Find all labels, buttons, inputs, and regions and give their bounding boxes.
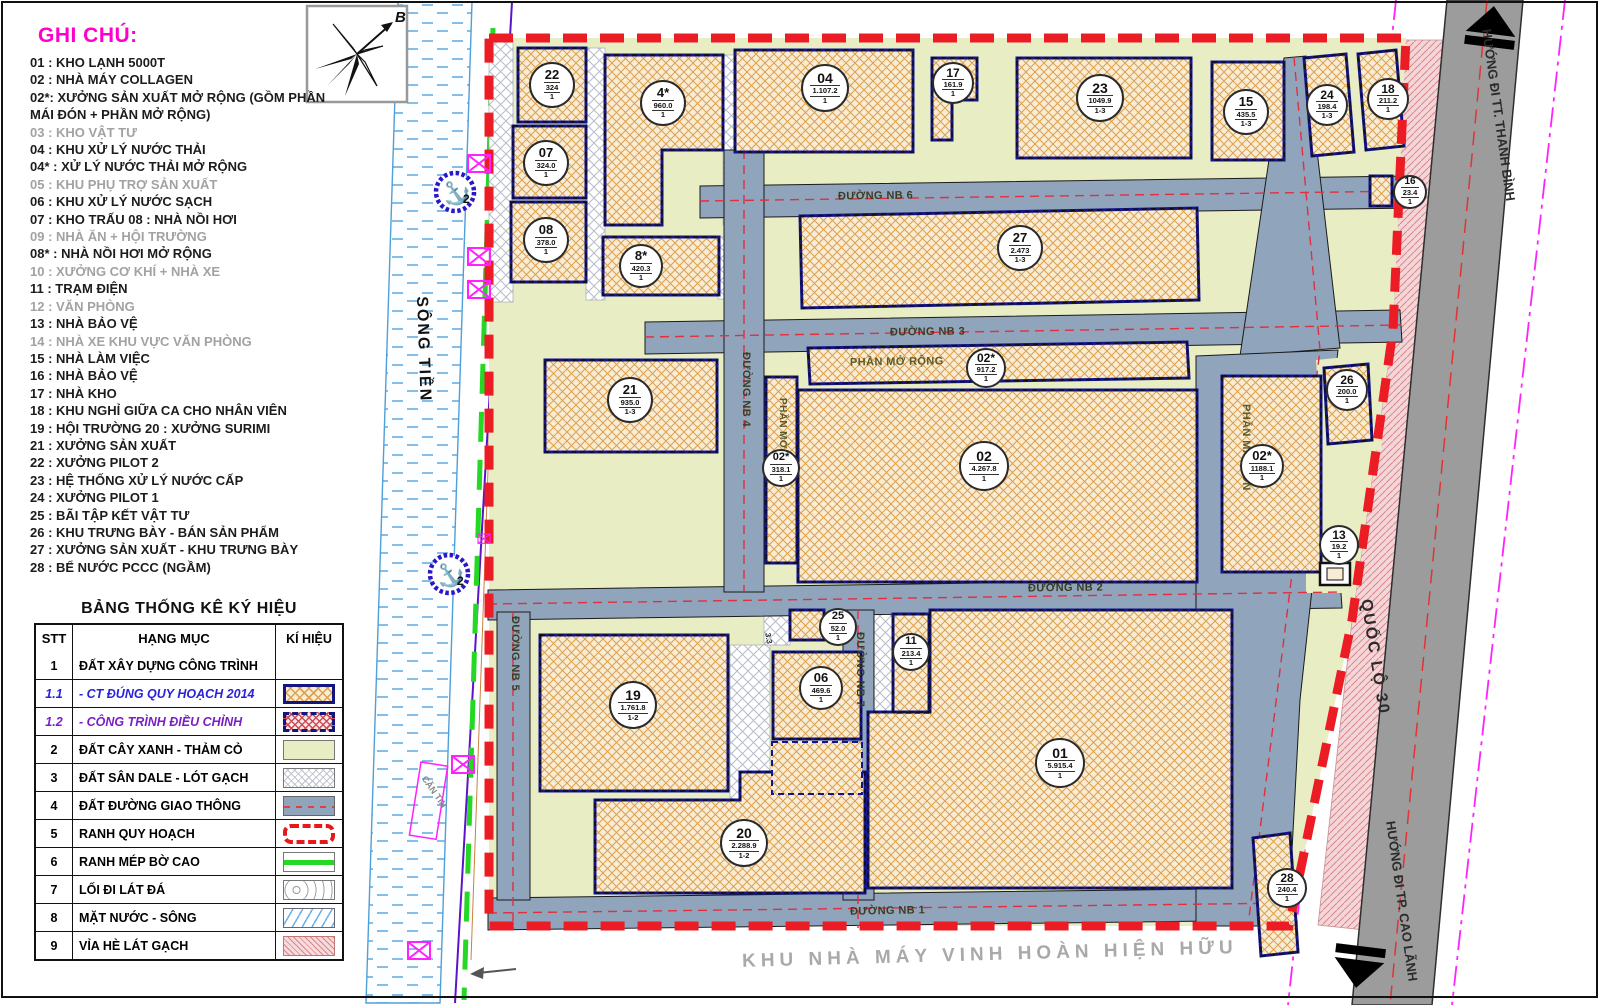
building-area: 1.761.8	[618, 702, 647, 713]
row-label: ĐẤT ĐƯỜNG GIAO THÔNG	[73, 792, 276, 819]
building-number: 15	[1239, 95, 1253, 108]
building-floors: 1	[909, 659, 913, 668]
row-label: LỐI ĐI LÁT ĐÁ	[73, 876, 276, 903]
legend-item: 01 : KHO LẠNH 5000T	[30, 54, 326, 71]
row-symbol-cell	[276, 904, 342, 931]
building-label-07: 07324.01	[523, 140, 569, 186]
row-label: VỈA HÈ LÁT GẠCH	[73, 932, 276, 959]
building-label-16: 1623.41	[1393, 175, 1427, 209]
legend-item: 02 : NHÀ MÁY COLLAGEN	[30, 71, 326, 88]
building-label-28: 28240.41	[1267, 868, 1307, 908]
building-label-01: 015.915.41	[1035, 738, 1085, 788]
symbol-table-row: 9VỈA HÈ LÁT GẠCH	[36, 931, 342, 959]
symbol-swatch-road	[283, 796, 335, 816]
road-label-nb1: ĐƯỜNG NB 1	[850, 904, 925, 918]
legend-title: GHI CHÚ:	[38, 24, 326, 48]
symbol-table-row: 8MẶT NƯỚC - SÔNG	[36, 903, 342, 931]
header-kihieu: KÍ HIỆU	[276, 625, 342, 652]
building-label-4s: 4*960.01	[640, 80, 686, 126]
building-floors: 1	[550, 93, 554, 102]
row-stt: 3	[36, 764, 73, 791]
symbol-swatch-stone	[283, 880, 335, 900]
symbol-table-grid: STT HẠNG MỤC KÍ HIỆU 1ĐẤT XÂY DỰNG CÔNG …	[34, 623, 344, 961]
road-label-nb2: ĐƯỜNG NB 2	[1028, 581, 1103, 594]
building-label-26: 26200.01	[1326, 369, 1368, 411]
building-floors: 1	[951, 90, 955, 99]
row-symbol-cell	[276, 708, 342, 735]
building-label-21: 21935.01-3	[607, 377, 653, 423]
building-number: 24	[1320, 89, 1333, 101]
building-area: 1049.9	[1087, 95, 1114, 106]
building-number: 4*	[657, 86, 669, 99]
building-area: 2.288.9	[729, 840, 758, 851]
legend-item: 04 : KHU XỬ LÝ NƯỚC THẢI	[30, 141, 326, 158]
legend-item: 16 : NHÀ BẢO VỆ	[30, 367, 326, 384]
building-label-04: 041.107.21	[801, 64, 849, 112]
symbol-table-row: 3ĐẤT SÂN DALE - LÓT GẠCH	[36, 763, 342, 791]
building-floors: 1	[982, 475, 986, 484]
row-stt: 6	[36, 848, 73, 875]
north-label: B	[395, 9, 406, 26]
symbol-swatch-pink	[283, 936, 335, 956]
header-hangmuc: HẠNG MỤC	[73, 625, 276, 652]
building-label-18: 18211.21	[1367, 78, 1409, 120]
symbol-swatch-gray	[283, 768, 335, 788]
row-stt: 5	[36, 820, 73, 847]
building-number: 02*	[977, 352, 995, 364]
building-floors: 1-3	[1322, 112, 1333, 121]
building-number: 23	[1092, 81, 1108, 95]
symbol-table-header: STT HẠNG MỤC KÍ HIỆU	[36, 625, 342, 652]
building-floors: 1	[823, 97, 827, 106]
building-number: 02*	[773, 452, 790, 463]
legend-item: 10 : XƯỞNG CƠ KHÍ + NHÀ XE	[30, 263, 326, 280]
symbol-table-row: 6RANH MÉP BỜ CAO	[36, 847, 342, 875]
building-floors: 1-3	[1015, 256, 1026, 265]
building-label-17: 17161.91	[932, 62, 974, 104]
building-label-15: 15435.51-3	[1223, 89, 1269, 135]
row-stt: 2	[36, 736, 73, 763]
building-label-02s: 02*917.21	[966, 348, 1006, 388]
row-symbol-cell	[276, 792, 342, 819]
legend-item: 23 : HỆ THỐNG XỬ LÝ NƯỚC CẤP	[30, 472, 326, 489]
building-area: 4.267.8	[969, 463, 998, 474]
legend-item: 09 : NHÀ ĂN + HỘI TRƯỜNG	[30, 228, 326, 245]
building-06-annex	[772, 742, 862, 794]
extension-label-top: PHẦN MỞ RỘNG	[850, 355, 944, 368]
legend-item: 11 : TRẠM ĐIỆN	[30, 280, 326, 297]
building-label-08: 08378.01	[523, 217, 569, 263]
building-floors: 1	[639, 274, 643, 283]
row-stt: 8	[36, 904, 73, 931]
building-number: 02*	[1252, 449, 1272, 462]
row-stt: 1	[36, 652, 73, 679]
row-symbol-cell	[276, 680, 342, 707]
building-area: 1.107.2	[810, 85, 839, 96]
building-floors: 1	[819, 696, 823, 705]
guard-house-13	[1320, 563, 1350, 585]
building-label-06: 06469.61	[799, 666, 843, 710]
road-label-nb5: ĐƯỜNG NB 5	[509, 616, 521, 691]
building-label-24: 24198.41-3	[1306, 84, 1348, 126]
building-label-02s: 02*1188.11	[1240, 444, 1284, 488]
symbol-table-row: 5RANH QUY HOẠCH	[36, 819, 342, 847]
row-symbol-cell	[276, 764, 342, 791]
anchor-icon: ⚓ 2	[429, 555, 470, 595]
building-floors: 1	[1337, 552, 1341, 561]
symbol-table-title: BẢNG THỐNG KÊ KÝ HIỆU	[34, 600, 344, 618]
building-label-8s: 8*420.31	[619, 244, 663, 288]
building-number: 07	[539, 146, 553, 159]
building-16	[1370, 176, 1392, 206]
legend-item: 14 : NHÀ XE KHU VỰC VĂN PHÒNG	[30, 333, 326, 350]
building-floors: 1	[779, 475, 783, 484]
building-number: 04	[817, 71, 833, 85]
row-symbol-cell	[276, 932, 342, 959]
legend-item: 12 : VĂN PHÒNG	[30, 298, 326, 315]
legend-item: 13 : NHÀ BẢO VỆ	[30, 315, 326, 332]
road-label-nb6: ĐƯỜNG NB 6	[838, 189, 913, 202]
building-floors: 1-2	[739, 852, 750, 861]
symbol-table-body: 1ĐẤT XÂY DỰNG CÔNG TRÌNH1.1- CT ĐÚNG QUY…	[36, 652, 342, 959]
building-floors: 1-2	[628, 714, 639, 723]
building-label-27: 272.4731-3	[997, 225, 1043, 271]
building-number: 27	[1013, 231, 1027, 244]
symbol-table-row: 1ĐẤT XÂY DỰNG CÔNG TRÌNH	[36, 652, 342, 679]
building-floors: 1	[1345, 397, 1349, 406]
building-label-20: 202.288.91-2	[720, 819, 768, 867]
building-number: 16	[1404, 177, 1415, 187]
building-number: 22	[545, 68, 559, 81]
building-label-22: 223241	[529, 62, 575, 108]
legend-item: 18 : KHU NGHỈ GIỮA CA CHO NHÂN VIÊN	[30, 402, 326, 419]
symbol-table-row: 4ĐẤT ĐƯỜNG GIAO THÔNG	[36, 791, 342, 819]
building-number: 21	[623, 383, 637, 396]
river-label: SÔNG TIỀN	[412, 296, 434, 403]
row-symbol-cell	[276, 736, 342, 763]
row-symbol-cell	[276, 876, 342, 903]
row-stt: 7	[36, 876, 73, 903]
row-stt: 1.1	[36, 680, 73, 707]
symbol-table-row: 1.1- CT ĐÚNG QUY HOẠCH 2014	[36, 679, 342, 707]
row-label: - CÔNG TRÌNH ĐIỀU CHỈNH	[73, 708, 276, 735]
row-label: RANH MÉP BỜ CAO	[73, 848, 276, 875]
legend-item: 05 : KHU PHỤ TRỢ SẢN XUẤT	[30, 176, 326, 193]
legend-item: 24 : XƯỞNG PILOT 1	[30, 489, 326, 506]
legend-item: 26 : KHU TRƯNG BÀY - BÁN SẢN PHẨM	[30, 524, 326, 541]
building-floors: 1	[1260, 474, 1264, 483]
symbol-table-row: 7LỐI ĐI LÁT ĐÁ	[36, 875, 342, 903]
legend-item: 19 : HỘI TRƯỜNG 20 : XƯỞNG SURIMI	[30, 420, 326, 437]
legend-item: 07 : KHO TRẤU 08 : NHÀ NỒI HƠI	[30, 211, 326, 228]
building-number: 25	[832, 611, 844, 622]
site-plan-page: ⚓ 2 ⚓ 2	[0, 0, 1600, 1005]
symbol-swatch-water	[283, 908, 335, 928]
legend-item: 17 : NHÀ KHO	[30, 385, 326, 402]
building-floors: 1	[984, 375, 988, 384]
building-label-25: 2552.01	[819, 608, 857, 646]
building-floors: 1	[1386, 106, 1390, 115]
row-stt: 9	[36, 932, 73, 959]
row-label: MẶT NƯỚC - SÔNG	[73, 904, 276, 931]
legend-item: 28 : BỂ NƯỚC PCCC (NGẦM)	[30, 559, 326, 576]
symbol-swatch-red	[283, 712, 335, 732]
legend-item: 03 : KHO VẬT TƯ	[30, 124, 326, 141]
building-label-19: 191.761.81-2	[609, 681, 657, 729]
building-number: 8*	[635, 249, 647, 262]
legend-panel: GHI CHÚ: 01 : KHO LẠNH 5000T02 : NHÀ MÁY…	[30, 24, 326, 576]
building-number: 08	[539, 223, 553, 236]
building-number: 18	[1381, 83, 1394, 95]
building-number: 28	[1280, 872, 1293, 884]
symbol-swatch-gline	[283, 852, 335, 872]
row-label: ĐẤT CÂY XANH - THẢM CỎ	[73, 736, 276, 763]
building-number: 06	[814, 671, 828, 684]
symbol-swatch-tan	[283, 684, 335, 704]
legend-item: 06 : KHU XỬ LÝ NƯỚC SẠCH	[30, 193, 326, 210]
legend-item: 27 : XƯỞNG SẢN XUẤT - KHU TRƯNG BÀY	[30, 541, 326, 558]
plan-scene: ⚓ 2 ⚓ 2	[0, 0, 1600, 1005]
building-floors: 1-3	[625, 408, 636, 417]
building-floors: 1-3	[1241, 120, 1252, 129]
legend-item: 15 : NHÀ LÀM VIỆC	[30, 350, 326, 367]
building-floors: 1	[661, 111, 665, 120]
row-label: ĐẤT XÂY DỰNG CÔNG TRÌNH	[73, 652, 276, 679]
anchor-icon: ⚓ 2	[435, 173, 476, 213]
legend-item: 04* : XỬ LÝ NƯỚC THẢI MỞ RỘNG	[30, 158, 326, 175]
building-number: 20	[736, 826, 752, 840]
building-floors: 1	[1408, 198, 1412, 207]
building-number: 17	[946, 67, 959, 79]
row-symbol-cell	[276, 652, 342, 679]
building-label-02: 024.267.81	[959, 441, 1009, 491]
building-label-23: 231049.91-3	[1076, 74, 1124, 122]
road-label-nb3: ĐƯỜNG NB 3	[890, 325, 965, 338]
building-label-11: 11213.41	[892, 633, 930, 671]
symbol-swatch-dash	[283, 824, 335, 844]
row-label: - CT ĐÚNG QUY HOẠCH 2014	[73, 680, 276, 707]
row-label: RANH QUY HOẠCH	[73, 820, 276, 847]
row-label: ĐẤT SÂN DALE - LÓT GẠCH	[73, 764, 276, 791]
symbol-table: BẢNG THỐNG KÊ KÝ HIỆU STT HẠNG MỤC KÍ HI…	[34, 600, 344, 961]
building-floors: 1	[544, 171, 548, 180]
svg-text:2: 2	[457, 574, 464, 588]
bank-arrow-icon	[470, 967, 516, 979]
legend-item: 21 : XƯỞNG SẢN XUẤT	[30, 437, 326, 454]
building-floors: 1	[836, 634, 840, 643]
header-stt: STT	[36, 625, 73, 652]
legend-item: 08* : NHÀ NỒI HƠI MỞ RỘNG	[30, 245, 326, 262]
building-floors: 1	[1285, 895, 1289, 904]
row-stt: 4	[36, 792, 73, 819]
building-floors: 1	[1058, 772, 1062, 781]
building-label-02s: 02*318.11	[762, 449, 800, 487]
building-number: 26	[1340, 374, 1353, 386]
building-label-13: 1319.21	[1319, 525, 1359, 565]
svg-text:2: 2	[463, 192, 470, 206]
building-area: 5.915.4	[1045, 760, 1074, 771]
row-stt: 1.2	[36, 708, 73, 735]
legend-item: 22 : XƯỞNG PILOT 2	[30, 454, 326, 471]
building-floors: 1	[544, 248, 548, 257]
building-number: 11	[905, 636, 917, 647]
building-floors: 1-3	[1095, 107, 1106, 116]
symbol-table-row: 2ĐẤT CÂY XANH - THẢM CỎ	[36, 735, 342, 763]
legend-item: 25 : BÃI TẬP KẾT VẬT TƯ	[30, 507, 326, 524]
symbol-swatch-green	[283, 740, 335, 760]
symbol-table-row: 1.2- CÔNG TRÌNH ĐIỀU CHỈNH	[36, 707, 342, 735]
row-symbol-cell	[276, 820, 342, 847]
legend-item: 02*: XƯỞNG SẢN XUẤT MỞ RỘNG (GỒM PHẦN MÁ…	[30, 89, 326, 124]
building-number: 02	[976, 449, 992, 463]
building-number: 13	[1332, 529, 1345, 541]
building-number: 01	[1052, 746, 1068, 760]
road-label-nb4: ĐƯỜNG NB 4	[740, 352, 752, 427]
building-number: 19	[625, 688, 641, 702]
legend-list: 01 : KHO LẠNH 5000T02 : NHÀ MÁY COLLAGEN…	[30, 54, 326, 576]
road-label-nb7: ĐƯỜNG NB 7	[854, 632, 866, 707]
dim-mark: 3.3	[763, 632, 774, 645]
row-symbol-cell	[276, 848, 342, 875]
